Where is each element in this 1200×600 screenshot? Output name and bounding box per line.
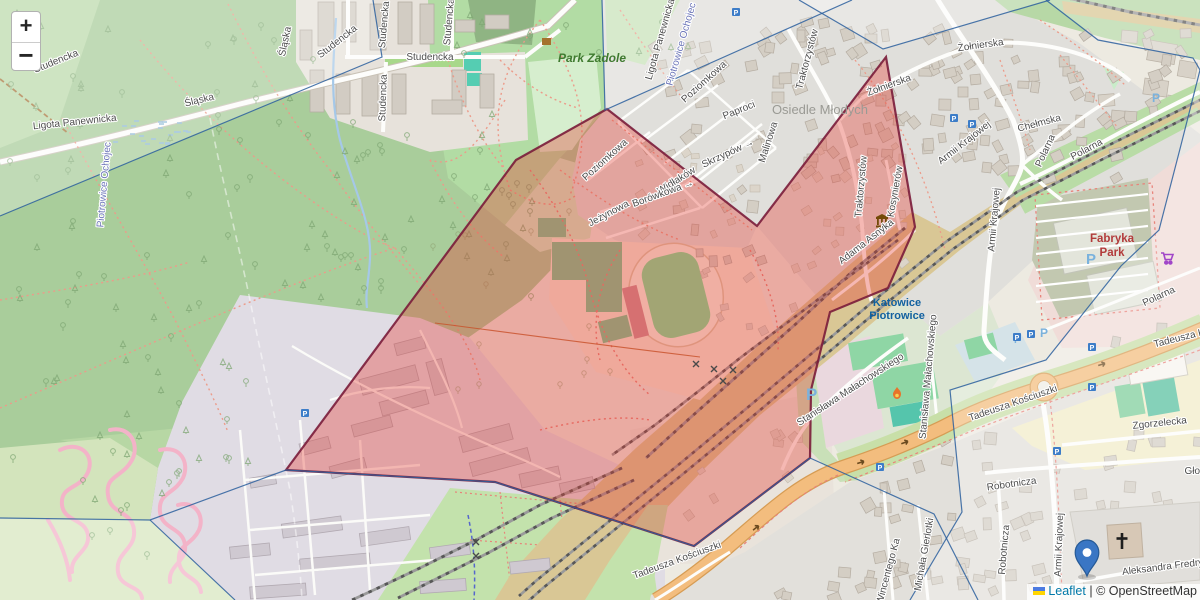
- svg-text:P: P: [1090, 345, 1095, 352]
- svg-text:P: P: [1040, 326, 1048, 340]
- svg-text:P: P: [1086, 251, 1096, 268]
- svg-text:Studencka: Studencka: [377, 74, 390, 122]
- svg-text:P: P: [734, 10, 739, 17]
- svg-text:Fabryka: Fabryka: [1090, 233, 1135, 245]
- svg-text:P: P: [1090, 385, 1095, 392]
- svg-text:P: P: [806, 385, 817, 404]
- svg-text:P: P: [303, 411, 308, 418]
- svg-text:Piotrowice: Piotrowice: [869, 310, 925, 322]
- svg-text:Park: Park: [1100, 247, 1126, 259]
- svg-text:P: P: [952, 116, 957, 123]
- svg-text:Park Zadole: Park Zadole: [558, 51, 626, 65]
- svg-text:P: P: [1015, 335, 1020, 342]
- svg-text:Katowice: Katowice: [873, 297, 921, 309]
- svg-text:Osiedle Młodych: Osiedle Młodych: [772, 102, 868, 117]
- svg-text:P: P: [1055, 449, 1060, 456]
- svg-text:Studencka: Studencka: [406, 52, 454, 63]
- svg-text:P: P: [1152, 91, 1160, 105]
- svg-text:P: P: [1029, 332, 1034, 339]
- svg-text:Armii Krajowej: Armii Krajowej: [1053, 513, 1066, 577]
- svg-text:Głog: Głog: [1184, 466, 1200, 477]
- svg-text:P: P: [878, 465, 883, 472]
